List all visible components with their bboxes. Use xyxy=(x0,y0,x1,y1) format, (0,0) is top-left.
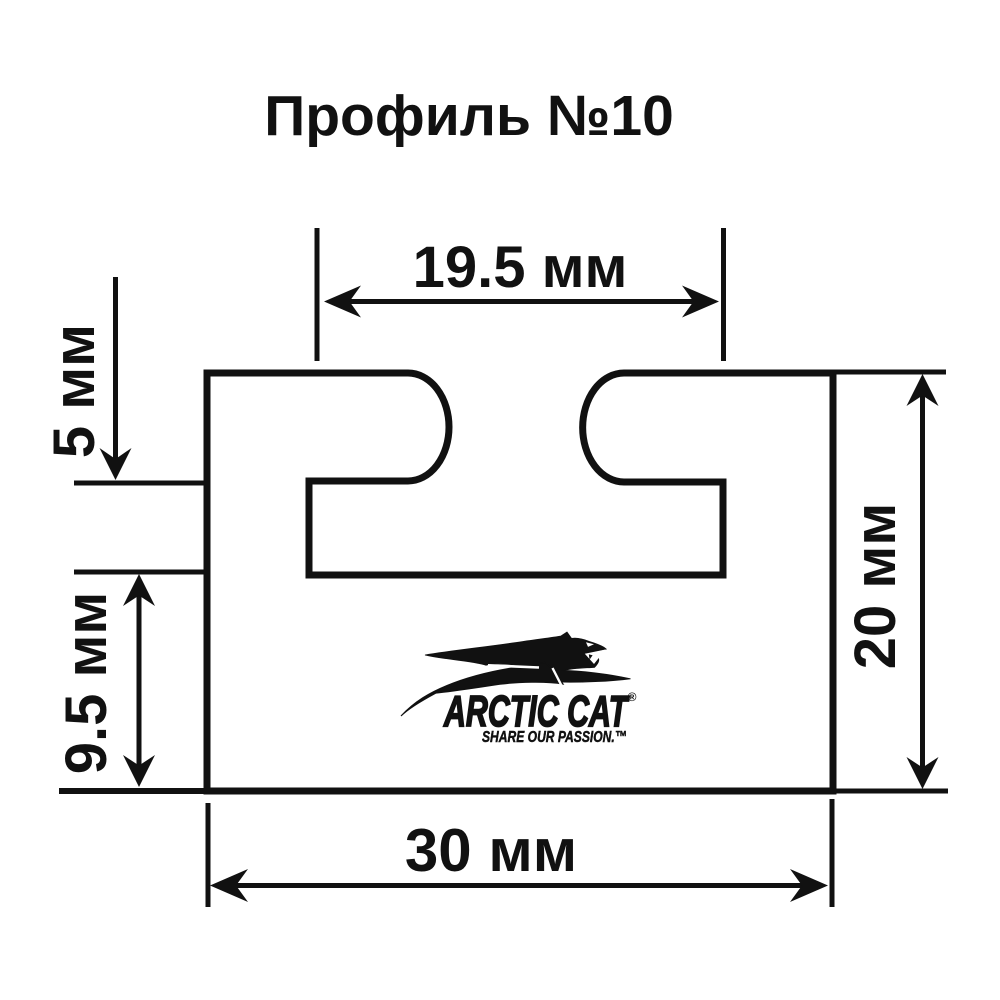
svg-text:Профиль №10: Профиль №10 xyxy=(264,84,674,148)
svg-text:SHARE OUR PASSION.™: SHARE OUR PASSION.™ xyxy=(482,728,627,746)
svg-text:20 мм: 20 мм xyxy=(843,503,908,669)
svg-text:5 мм: 5 мм xyxy=(42,324,107,458)
svg-text:19.5 мм: 19.5 мм xyxy=(413,235,628,300)
svg-text:®: ® xyxy=(628,690,637,704)
svg-text:9.5 мм: 9.5 мм xyxy=(54,592,119,775)
svg-text:30 мм: 30 мм xyxy=(405,817,577,884)
